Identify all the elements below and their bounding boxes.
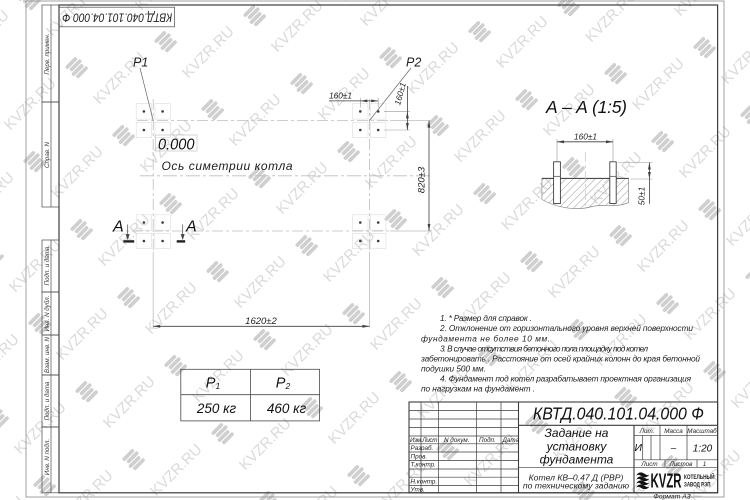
svg-text:4. Фундамент под котел разраб: 4. Фундамент под котел разрабатывает про… (440, 374, 692, 384)
svg-text:Инв. N подл.: Инв. N подл. (44, 439, 51, 475)
svg-text:1620±2: 1620±2 (245, 316, 277, 327)
svg-text:0.000: 0.000 (158, 136, 195, 153)
svg-text:Разраб.: Разраб. (411, 444, 434, 452)
svg-text:3. В случае отсутствия бетонн: 3. В случае отсутствия бетонного пола пл… (440, 343, 648, 353)
svg-text:по нагрузкам на фундамент .: по нагрузкам на фундамент . (421, 384, 535, 394)
svg-text:Подп. и дата: Подп. и дата (44, 246, 51, 285)
svg-text:забетонировать . Расстояние от: забетонировать . Расстояние от осей край… (420, 353, 700, 363)
svg-text:2. Отклонение от горизонтальн: 2. Отклонение от горизонтального уровня … (439, 323, 693, 333)
svg-text:820±3: 820±3 (417, 166, 428, 193)
svg-text:160±1: 160±1 (329, 90, 352, 100)
svg-text:1. * Размер для справок .: 1. * Размер для справок . (440, 313, 532, 323)
svg-text:КВТД.040.101.04.000 Ф: КВТД.040.101.04.000 Ф (62, 11, 172, 25)
svg-text:фундамента не более 10 мм.: фундамента не более 10 мм. (421, 333, 550, 343)
svg-text:Подп. и дата: Подп. и дата (44, 381, 51, 420)
svg-text:Утв.: Утв. (410, 487, 425, 494)
svg-text:KVZR: KVZR (651, 469, 682, 492)
svg-text:160±1: 160±1 (574, 132, 597, 142)
svg-text:N докум.: N докум. (444, 436, 469, 444)
svg-text:250 кг: 250 кг (196, 401, 237, 416)
svg-text:50±1: 50±1 (636, 187, 646, 205)
svg-text:А: А (185, 219, 197, 236)
svg-text:Н.контр.: Н.контр. (411, 479, 438, 486)
svg-text:P1: P1 (133, 56, 148, 70)
svg-text:–: – (670, 443, 677, 454)
svg-text:КОТЕЛЬНЫЙ: КОТЕЛЬНЫЙ (684, 473, 715, 481)
svg-text:Дата: Дата (502, 437, 520, 444)
svg-text:Формат А3: Формат А3 (653, 494, 690, 500)
svg-text:фундамента: фундамента (540, 453, 614, 467)
svg-text:Пров.: Пров. (411, 453, 428, 460)
svg-text:подушки 500 мм.: подушки 500 мм. (421, 364, 486, 374)
svg-text:установку: установку (546, 440, 608, 454)
svg-text:КВТД.040.101.04.000 Ф: КВТД.040.101.04.000 Ф (533, 403, 704, 423)
svg-text:Масштаб: Масштаб (687, 427, 717, 435)
svg-text:1:20: 1:20 (693, 443, 713, 454)
svg-text:Лит.: Лит. (639, 428, 655, 435)
svg-text:Перв. примен.: Перв. примен. (44, 33, 51, 74)
svg-text:Взам. инв. N: Взам. инв. N (44, 336, 51, 373)
svg-text:Подп.: Подп. (479, 436, 496, 444)
svg-text:P2: P2 (406, 56, 421, 70)
svg-text:Справ. N: Справ. N (44, 142, 51, 168)
svg-text:по техническому заданию: по техническому заданию (523, 480, 630, 490)
svg-text:Изм.Лист: Изм.Лист (410, 437, 438, 444)
svg-text:Т.контр.: Т.контр. (411, 462, 436, 469)
svg-text:И: И (635, 442, 643, 454)
svg-text:Листов: Листов (669, 461, 694, 468)
svg-text:Лист: Лист (640, 461, 657, 468)
svg-text:Масса: Масса (664, 428, 683, 435)
svg-text:Задание на: Задание на (545, 426, 609, 440)
svg-text:Инв. N дубл.: Инв. N дубл. (44, 296, 51, 332)
svg-text:А – А (1:5): А – А (1:5) (545, 97, 627, 117)
svg-text:Ось симетрии котла: Ось симетрии котла (162, 159, 293, 173)
svg-text:460 кг: 460 кг (267, 401, 307, 416)
svg-text:ЗАВОД РЭП: ЗАВОД РЭП (684, 482, 711, 488)
svg-text:1: 1 (703, 461, 707, 468)
svg-text:А: А (112, 219, 124, 236)
